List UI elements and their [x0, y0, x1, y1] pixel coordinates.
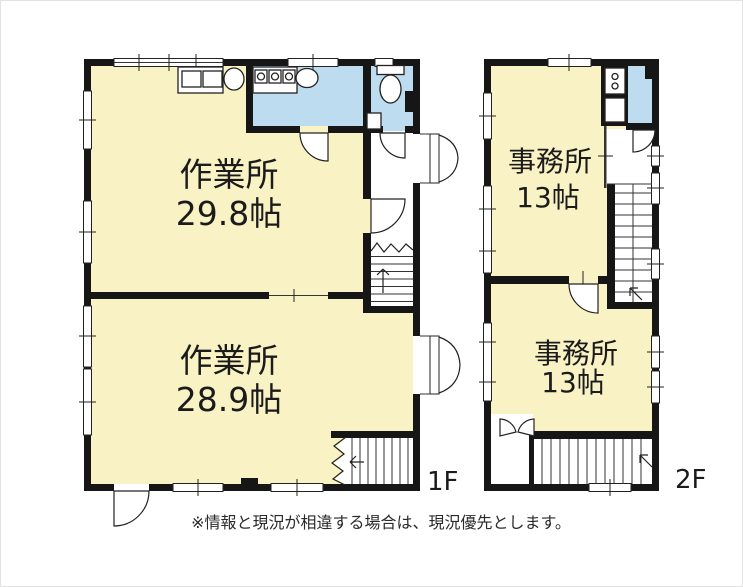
wall-corner-notch	[645, 66, 659, 79]
wall-under-toilet	[405, 126, 420, 133]
wall-stairwell-bottom	[607, 302, 659, 309]
wall-under-kitchenette	[626, 123, 659, 130]
kitchen-sink-icon	[605, 98, 625, 122]
disclaimer-text: ※情報と現況が相違する場合は、現況優先とします。	[191, 513, 571, 532]
basin-icon	[224, 68, 244, 90]
basin-icon	[296, 69, 318, 88]
room-1f-b-size: 28.9帖	[176, 380, 282, 419]
wall-corridor-lower	[363, 233, 371, 313]
room-2f-b-size: 13帖	[541, 366, 605, 399]
wall-under-washroom-a	[246, 126, 300, 133]
floor-label-1f: 1F	[427, 467, 459, 497]
bottom-stairs-fill	[334, 438, 413, 484]
double-door-entrance-lower	[420, 336, 460, 394]
double-door-entrance-upper	[420, 134, 458, 183]
kitchen-stove-icon	[605, 68, 625, 94]
wall-office-divider-a	[484, 276, 569, 284]
wall-washroom-left	[246, 66, 253, 128]
wall-above-bottom-stairs-2f	[529, 431, 659, 439]
floor-label-2f: 2F	[675, 465, 707, 495]
room-1f-a-size: 29.8帖	[176, 194, 282, 233]
room-2f-a-name: 事務所	[508, 145, 592, 178]
wall-landing-thin	[604, 126, 607, 188]
wall-1f-right-c	[413, 394, 420, 491]
toilet-shelf	[367, 113, 381, 129]
wall-under-mid-stairs	[363, 306, 420, 313]
wall-vestibule-right	[529, 439, 534, 484]
wall-stairwell-left	[607, 184, 615, 306]
wall-office-divider-b	[598, 276, 607, 284]
floor-2f: 事務所 13帖 事務所 13帖 2F	[479, 54, 707, 496]
wall-1f-right-b	[413, 183, 420, 336]
entry-door-gap	[114, 484, 149, 491]
floorplan-drawing: 作業所 29.8帖 作業所 28.9帖 1F	[1, 1, 743, 587]
wall-toilet-notch	[405, 91, 420, 112]
door-exterior-bottom-left	[114, 491, 149, 526]
room-1f-b-name: 作業所	[180, 341, 279, 380]
workshop-sink-counter	[178, 67, 244, 93]
wall-2f-bottom	[484, 484, 659, 491]
room-2f-a-size: 13帖	[516, 181, 580, 214]
wall-room-divider-a	[84, 292, 269, 299]
floorplan-image: 作業所 29.8帖 作業所 28.9帖 1F	[0, 0, 743, 587]
floor-1f: 作業所 29.8帖 作業所 28.9帖 1F	[79, 54, 460, 526]
wall-stub-bottom	[241, 478, 258, 484]
room-1f-a-name: 作業所	[180, 155, 279, 194]
mid-stairs-fill	[371, 254, 413, 306]
wall-above-bottom-stairs	[331, 431, 420, 438]
wall-room-divider-b	[328, 292, 369, 299]
